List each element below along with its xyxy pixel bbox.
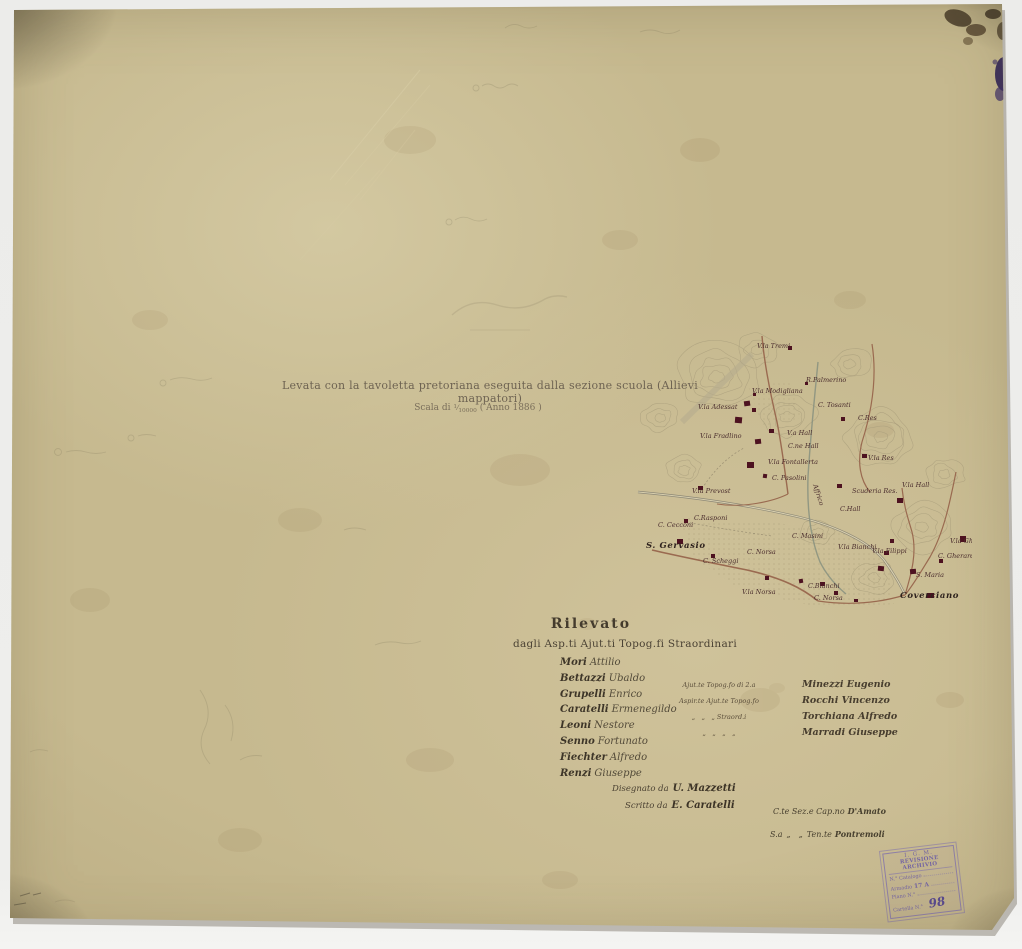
map-place-label: C.Hall	[840, 505, 861, 513]
contour-line	[938, 469, 950, 478]
assistant-row: Ajut.te Topog.fo di 2.aMinezzi Eugenio	[646, 679, 916, 695]
contour-line	[838, 355, 861, 376]
contour-line	[915, 522, 929, 532]
contour-line	[906, 514, 937, 539]
stamp-armadio-value: 17 A	[914, 881, 930, 890]
surveyor-given-name: Nestore	[594, 720, 635, 731]
map-place-label: V.la Res	[868, 454, 894, 462]
scanned-map-sheet: Levata con la tavoletta pretoriana esegu…	[0, 0, 1022, 949]
scale-year: ( Anno 1886 )	[480, 403, 542, 413]
map-place-label: Coverciano	[900, 591, 959, 601]
assistant-role: „ „ „ Straord.i	[646, 713, 792, 721]
map-place-label: C. Masini	[792, 532, 823, 540]
map-place-label: V.la Fradlino	[700, 432, 742, 440]
assistant-row: „ „ „ Straord.iTorchiana Alfredo	[646, 711, 916, 727]
map-place-label: V.la Bianchi	[838, 543, 876, 551]
map-place-label: C. Pasolini	[772, 474, 807, 482]
map-place-label: V.la Hall	[902, 481, 929, 489]
map-scale-line: Scala di 1⁄10000 ( Anno 1886 )	[378, 403, 578, 414]
surveyor-given-name: Giuseppe	[594, 768, 641, 779]
surveyor-given-name: Alfredo	[610, 752, 647, 763]
credit-prefix: Disegnato da	[612, 784, 669, 794]
road-cutting	[682, 354, 752, 422]
bottom-left-edge-marks	[14, 893, 41, 905]
scale-fraction: 1⁄10000	[453, 404, 476, 412]
map-place-label: V.la Filippi	[872, 547, 907, 555]
officer-lieutenant-line: S.a „ „ Ten.tePontremoli	[770, 829, 885, 839]
purple-ink-blob	[993, 57, 1014, 101]
map-place-label: V.la Tremi	[757, 342, 790, 350]
surveyor-surname: Mori	[560, 657, 587, 668]
surveyor-surname: Fiechter	[560, 752, 607, 763]
map-place-label: C.Bianchi	[808, 582, 840, 590]
officer-rank: S.a „ „ Ten.te	[770, 830, 832, 839]
credit-prefix: Scritto da	[625, 801, 668, 811]
officer-name: D'Amato	[848, 806, 886, 816]
map-place-label: V.la Norsa	[742, 588, 776, 596]
surveyor-surname: Leoni	[560, 720, 591, 731]
scale-prefix: Scala di	[414, 403, 450, 413]
assistant-role: „ „ „ „	[646, 729, 792, 737]
surveyed-map: V.la TremiR.PalmerinoV.la ModiglianaC. T…	[622, 322, 972, 622]
assistant-name: Rocchi Vincenzo	[802, 695, 890, 706]
map-place-label: R.Palmerino	[805, 376, 846, 384]
map-place-label: Scuderia Res.	[852, 487, 898, 495]
officer-rank: C.te Sez.e Cap.no	[773, 807, 845, 816]
assistant-role: Aspir.te Ajut.te Topog.fo	[646, 697, 792, 705]
assistant-role: Ajut.te Topog.fo di 2.a	[646, 681, 792, 689]
surveyor-surname: Caratelli	[560, 704, 609, 715]
credit-name: U. Mazzetti	[673, 783, 736, 794]
contour-line	[678, 465, 690, 475]
map-place-label: C. Gherardo	[938, 552, 972, 560]
assistant-name-list: Ajut.te Topog.fo di 2.aMinezzi EugenioAs…	[646, 679, 916, 743]
surveyor-given-name: Fortunato	[598, 736, 648, 747]
contour-line	[830, 349, 871, 378]
map-place-label: C.Rasponi	[694, 514, 727, 522]
map-place-label: C. Cecconi	[658, 521, 693, 529]
surveyor-given-name: Enrico	[609, 689, 642, 700]
surveyor-surname: Bettazzi	[560, 673, 606, 684]
map-sheet-paper: Levata con la tavoletta pretoriana esegu…	[0, 0, 1022, 949]
officer-name: Pontremoli	[835, 829, 885, 839]
map-place-label: S. Maria	[916, 571, 944, 579]
credit-name: E. Caratelli	[672, 800, 735, 811]
corner-ink-stains	[942, 6, 1009, 45]
assistant-name: Minezzi Eugenio	[802, 679, 890, 690]
surveyor-row: FiechterAlfredo	[560, 752, 740, 768]
surveyor-surname: Senno	[560, 736, 595, 747]
assistant-row: Aspir.te Ajut.te Topog.foRocchi Vincenzo	[646, 695, 916, 711]
surveyor-surname: Grupelli	[560, 689, 606, 700]
map-place-label: C.ne Hall	[788, 442, 819, 450]
map-place-label: C.Res	[858, 414, 878, 422]
map-place-label: V.la Gherardo	[950, 537, 972, 545]
assistant-row: „ „ „ „Marradi Giuseppe	[646, 727, 916, 743]
contour-line	[674, 460, 696, 479]
map-place-label: C. Tosanti	[818, 401, 851, 409]
map-place-label: V.la Adessat	[698, 403, 738, 411]
credit-drawn-by: Disegnato daU. Mazzetti	[612, 783, 736, 794]
contour-line	[844, 359, 856, 369]
scratch-creases	[300, 70, 430, 260]
contour-line	[926, 460, 965, 489]
rilevato-subheading: dagli Asp.ti Ajut.ti Topog.fi Straordina…	[500, 638, 750, 650]
contour-line	[640, 403, 677, 432]
assistant-name: Marradi Giuseppe	[802, 727, 898, 738]
map-place-label: C. Scheggi	[703, 557, 738, 565]
surveyor-given-name: Ubaldo	[609, 673, 645, 684]
credit-written-by: Scritto daE. Caratelli	[625, 800, 735, 811]
archive-stamp: I. G. M. REVISIONE ARCHIVIO N.° Catalogo…	[882, 845, 962, 919]
map-place-label: V.la Modigliana	[752, 387, 803, 395]
surveyor-row: RenziGiuseppe	[560, 768, 740, 784]
map-place-label: Affrico	[811, 482, 826, 506]
officer-commander-line: C.te Sez.e Cap.noD'Amato	[773, 806, 886, 816]
rilevato-heading: Rilevato	[491, 616, 691, 632]
contour-line	[898, 507, 947, 544]
contour-line	[655, 414, 666, 423]
surveyor-surname: Renzi	[560, 768, 591, 779]
surveyor-row: MoriAttilio	[560, 657, 740, 673]
map-place-label: V.a Hall	[787, 429, 812, 437]
map-place-label: C. Norsa	[814, 594, 843, 602]
contour-line	[865, 426, 895, 449]
contour-line	[646, 408, 671, 426]
surveyor-given-name: Attilio	[590, 657, 621, 668]
map-place-label: V.la Fontallerta	[768, 458, 818, 466]
contour-line	[874, 432, 888, 443]
assistant-name: Torchiana Alfredo	[802, 711, 897, 722]
map-place-label: C. Norsa	[747, 548, 776, 556]
map-place-label: V.la Prevost	[692, 487, 731, 495]
map-place-label: S. Gervasio	[646, 541, 706, 551]
stamp-cartella-number: 98	[928, 897, 946, 908]
